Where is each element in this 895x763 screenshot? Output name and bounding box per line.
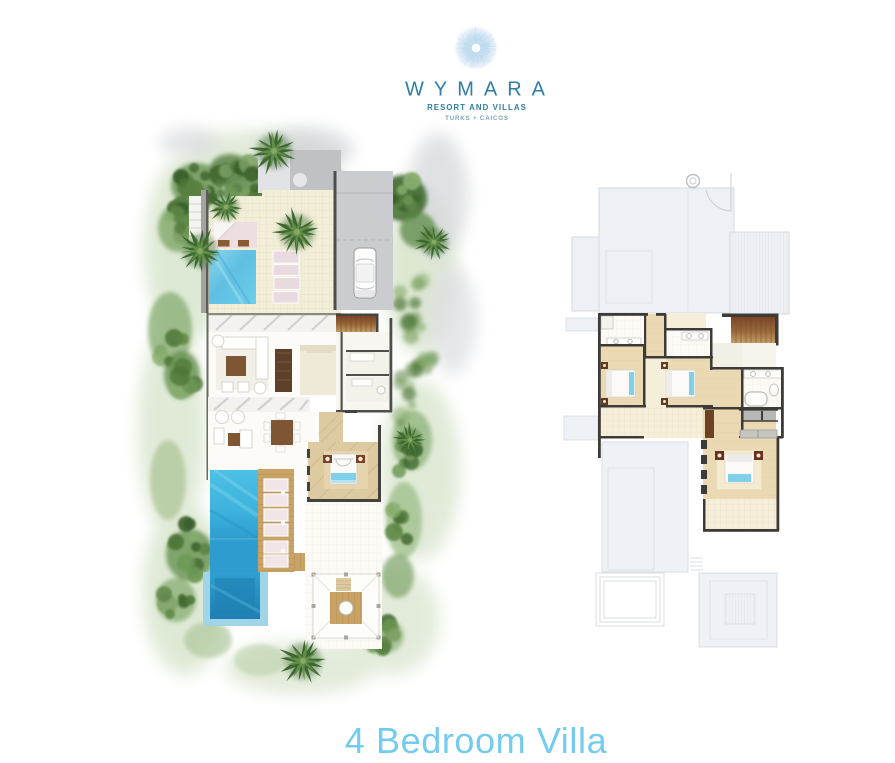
svg-text:WYMARA: WYMARA bbox=[405, 79, 555, 101]
svg-text:4 Bedroom Villa: 4 Bedroom Villa bbox=[345, 720, 608, 761]
svg-text:RESORT AND VILLAS: RESORT AND VILLAS bbox=[427, 103, 527, 112]
svg-text:TURKS + CAICOS: TURKS + CAICOS bbox=[445, 115, 509, 122]
